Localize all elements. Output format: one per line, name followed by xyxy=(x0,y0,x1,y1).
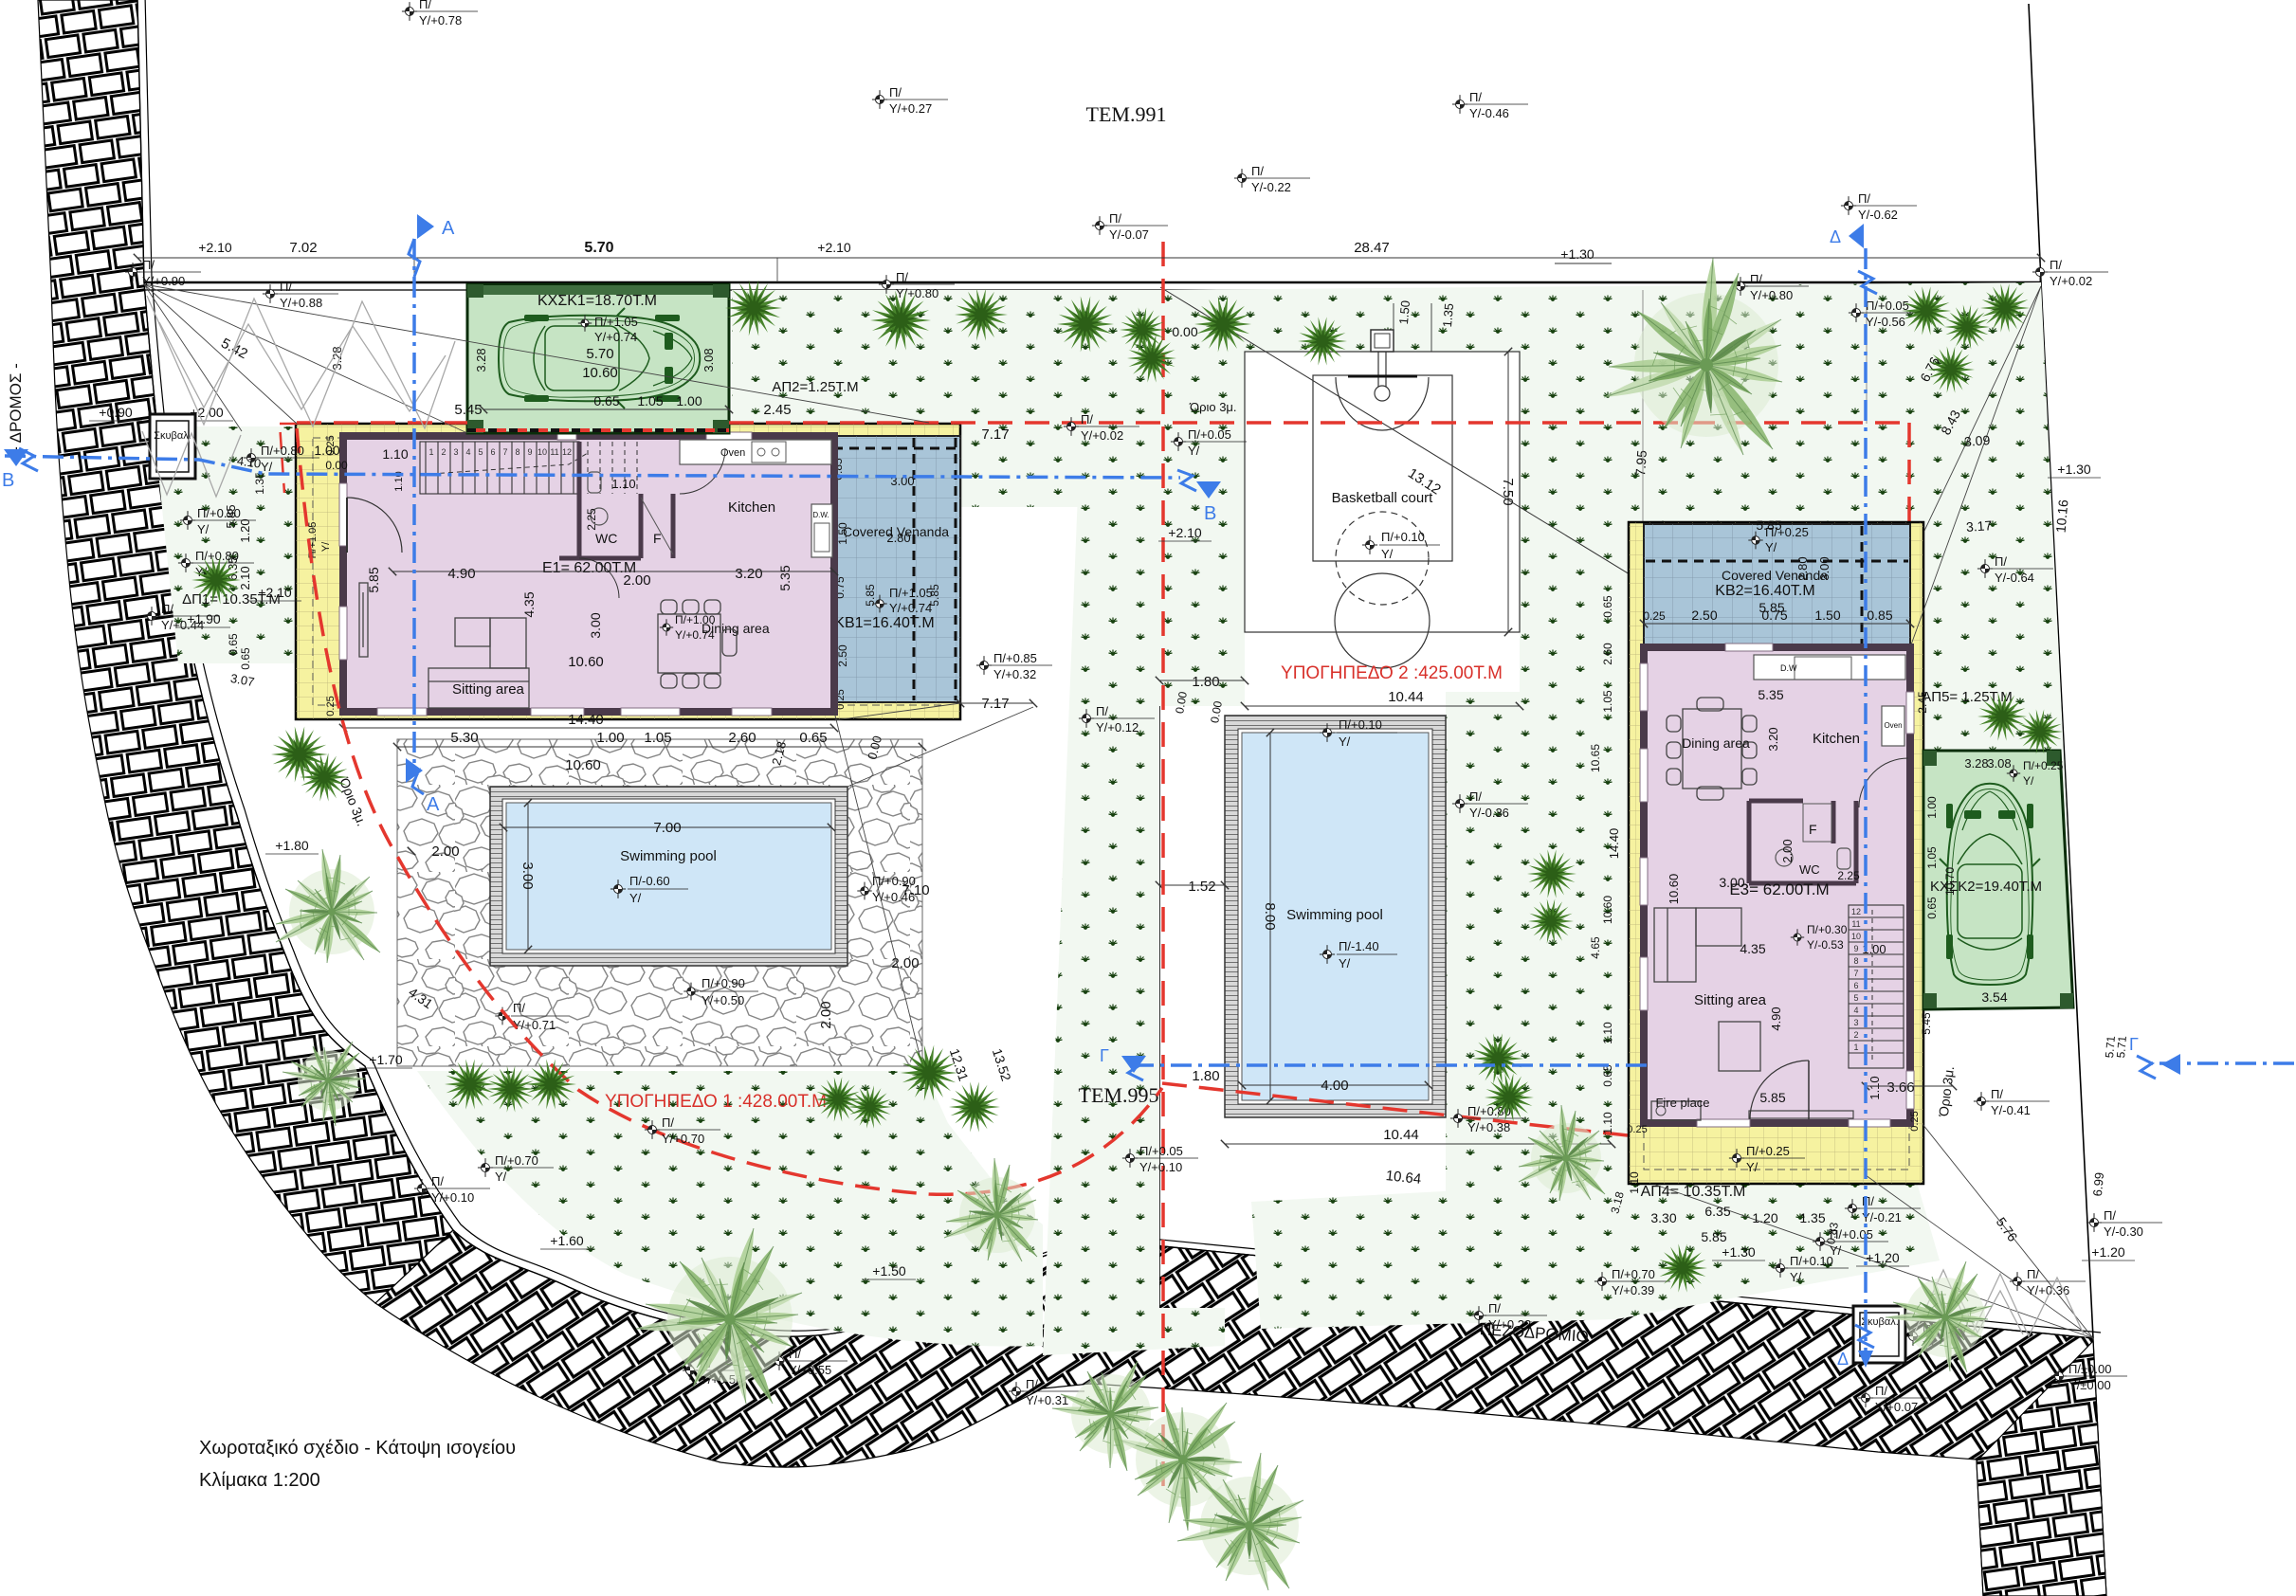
svg-text:0.65: 0.65 xyxy=(1601,1064,1614,1087)
svg-text:Y/+0.74: Y/+0.74 xyxy=(675,628,715,642)
svg-text:Y/: Y/ xyxy=(1746,1160,1758,1174)
svg-text:4: 4 xyxy=(1853,1006,1858,1015)
svg-text:Y/+0.02: Y/+0.02 xyxy=(1081,428,1123,443)
svg-text:2.60: 2.60 xyxy=(728,730,756,746)
svg-text:4.90: 4.90 xyxy=(1769,1007,1783,1030)
svg-text:10.16: 10.16 xyxy=(2053,499,2071,534)
svg-text:0.00: 0.00 xyxy=(325,459,348,472)
svg-text:A: A xyxy=(442,218,455,239)
svg-text:Π/: Π/ xyxy=(1096,704,1108,718)
svg-text:3.30: 3.30 xyxy=(1650,1210,1676,1225)
svg-text:1.10: 1.10 xyxy=(611,477,635,491)
svg-text:3.00: 3.00 xyxy=(1719,875,1744,890)
svg-text:+2.10: +2.10 xyxy=(817,240,851,255)
svg-text:Κλίμακα 1:200: Κλίμακα 1:200 xyxy=(199,1470,320,1491)
svg-text:Y/: Y/ xyxy=(629,891,642,905)
svg-text:Π/: Π/ xyxy=(2104,1208,2116,1223)
svg-text:ΚΧΣΚ1=18.70Τ.Μ: ΚΧΣΚ1=18.70Τ.Μ xyxy=(538,293,657,309)
svg-text:KB2=16.40T.M: KB2=16.40T.M xyxy=(1715,583,1814,599)
svg-text:Όριο 3μ.: Όριο 3μ. xyxy=(1189,400,1237,414)
svg-text:A: A xyxy=(427,794,440,815)
svg-text:10: 10 xyxy=(1851,932,1861,941)
svg-text:Π/: Π/ xyxy=(2050,258,2062,272)
svg-text:ΥΠΟΓΗΠΕΔΟ 1 :428.00Τ.Μ: ΥΠΟΓΗΠΕΔΟ 1 :428.00Τ.Μ xyxy=(605,1092,827,1112)
svg-text:Y/-0.64: Y/-0.64 xyxy=(1995,571,2034,585)
svg-text:Y/+0.50: Y/+0.50 xyxy=(702,993,744,1007)
svg-text:5: 5 xyxy=(1853,993,1858,1003)
svg-text:4.00: 4.00 xyxy=(1321,1078,1348,1094)
svg-text:+0.90: +0.90 xyxy=(99,405,133,420)
svg-text:2.60: 2.60 xyxy=(1601,643,1614,665)
svg-text:6.35: 6.35 xyxy=(1704,1204,1730,1219)
svg-text:Π/: Π/ xyxy=(896,270,908,284)
svg-text:3.00: 3.00 xyxy=(588,612,603,638)
svg-text:5.85: 5.85 xyxy=(1759,1090,1785,1105)
svg-text:10.44: 10.44 xyxy=(1383,1127,1419,1143)
svg-text:Π/+0.10: Π/+0.10 xyxy=(1790,1254,1833,1268)
svg-text:+1.50: +1.50 xyxy=(872,1263,906,1279)
svg-text:Π/: Π/ xyxy=(419,0,431,11)
svg-text:+1.70: +1.70 xyxy=(369,1052,403,1067)
svg-text:Y/+0.90: Y/+0.90 xyxy=(142,274,185,288)
svg-text:F: F xyxy=(653,531,662,546)
svg-text:Oven: Oven xyxy=(1884,721,1902,730)
svg-text:Swimming pool: Swimming pool xyxy=(1286,907,1383,923)
svg-text:2.45: 2.45 xyxy=(763,402,791,418)
svg-text:Y/: Y/ xyxy=(495,1170,507,1184)
svg-text:2.10: 2.10 xyxy=(238,566,252,589)
svg-text:ΥΠΟΓΗΠΕΔΟ 2 :425.00Τ.Μ: ΥΠΟΓΗΠΕΔΟ 2 :425.00Τ.Μ xyxy=(1281,663,1503,683)
svg-text:Y/: Y/ xyxy=(1339,735,1351,749)
svg-text:Π/+0.05: Π/+0.05 xyxy=(1866,299,1909,313)
svg-text:3.28: 3.28 xyxy=(1964,756,1988,771)
svg-text:1.50: 1.50 xyxy=(1814,608,1840,623)
svg-text:Π/+0.90: Π/+0.90 xyxy=(702,976,745,990)
svg-text:5.85: 5.85 xyxy=(1701,1229,1726,1244)
svg-text:1.00: 1.00 xyxy=(596,730,624,746)
svg-text:1: 1 xyxy=(428,447,433,457)
svg-text:1.20: 1.20 xyxy=(1752,1210,1777,1225)
svg-text:Y/-0.30: Y/-0.30 xyxy=(2104,1224,2143,1239)
svg-text:Y/-0.21: Y/-0.21 xyxy=(1862,1210,1902,1224)
svg-text:0.25: 0.25 xyxy=(1627,1124,1647,1135)
svg-text:+1.20: +1.20 xyxy=(1866,1250,1900,1265)
svg-text:1.05: 1.05 xyxy=(644,730,671,746)
svg-text:Π/: Π/ xyxy=(1862,1194,1874,1208)
svg-text:14.40: 14.40 xyxy=(1607,828,1621,860)
svg-text:4.90: 4.90 xyxy=(447,566,475,582)
svg-text:Y/-0.46: Y/-0.46 xyxy=(1469,106,1509,120)
svg-text:Basketball court: Basketball court xyxy=(1332,490,1434,506)
svg-text:Y/+0.88: Y/+0.88 xyxy=(280,296,322,310)
svg-text:Y/: Y/ xyxy=(1188,444,1200,458)
svg-text:14.40: 14.40 xyxy=(568,712,604,728)
svg-text:Π/: Π/ xyxy=(1251,164,1264,178)
svg-text:Π/: Π/ xyxy=(1469,789,1482,804)
svg-text:Y/+0.70: Y/+0.70 xyxy=(662,1132,704,1146)
svg-text:2: 2 xyxy=(441,447,446,457)
svg-text:5: 5 xyxy=(478,447,483,457)
svg-text:1.10: 1.10 xyxy=(1601,1022,1614,1044)
svg-text:Kitchen: Kitchen xyxy=(728,499,775,516)
svg-text:Π/: Π/ xyxy=(1991,1087,2003,1101)
svg-text:Sitting area: Sitting area xyxy=(1694,992,1767,1008)
svg-text:Π/: Π/ xyxy=(142,258,155,272)
svg-text:B: B xyxy=(1204,503,1216,524)
svg-text:Σκυβαλ.: Σκυβαλ. xyxy=(154,430,191,442)
svg-text:Y/±0.00: Y/±0.00 xyxy=(2068,1378,2111,1392)
svg-text:3.28: 3.28 xyxy=(474,348,488,372)
svg-text:+1.30: +1.30 xyxy=(1722,1244,1756,1260)
svg-text:Π/+0.70: Π/+0.70 xyxy=(495,1153,538,1168)
svg-text:D.W.: D.W. xyxy=(812,511,829,519)
svg-text:Y/+0.80: Y/+0.80 xyxy=(896,286,938,300)
svg-text:Y/: Y/ xyxy=(2023,774,2034,788)
svg-text:Y/-0.36: Y/-0.36 xyxy=(1469,806,1509,820)
svg-text:5.45: 5.45 xyxy=(454,402,482,418)
svg-text:KB1=16.40T.M: KB1=16.40T.M xyxy=(834,615,934,631)
svg-text:Dining area: Dining area xyxy=(1682,735,1750,751)
svg-text:2.00: 2.00 xyxy=(623,572,650,589)
svg-text:Π/: Π/ xyxy=(1026,1377,1038,1391)
svg-text:Π/: Π/ xyxy=(889,85,902,100)
svg-text:1.80: 1.80 xyxy=(1192,674,1219,690)
svg-text:Π/: Π/ xyxy=(280,280,292,294)
svg-text:7.17: 7.17 xyxy=(981,426,1009,443)
svg-text:WC: WC xyxy=(595,531,617,546)
svg-text:3.20: 3.20 xyxy=(1766,727,1780,751)
svg-text:7.10: 7.10 xyxy=(902,882,929,898)
svg-text:2.00: 2.00 xyxy=(818,1001,834,1028)
svg-text:5.71: 5.71 xyxy=(2114,1035,2129,1059)
svg-text:9: 9 xyxy=(527,447,532,457)
svg-text:Kitchen: Kitchen xyxy=(1813,731,1860,747)
svg-text:+2.10: +2.10 xyxy=(1168,525,1202,540)
svg-text:Π/-1.40: Π/-1.40 xyxy=(1339,939,1379,953)
svg-text:6: 6 xyxy=(490,447,495,457)
svg-text:5.85: 5.85 xyxy=(864,584,877,607)
svg-text:4.65: 4.65 xyxy=(1589,936,1602,959)
svg-text:Δ: Δ xyxy=(1837,1350,1849,1369)
svg-text:Π/: Π/ xyxy=(2027,1267,2039,1281)
svg-text:2.50: 2.50 xyxy=(1691,608,1717,623)
svg-text:3.08: 3.08 xyxy=(1987,756,2011,771)
svg-text:Y/-0.56: Y/-0.56 xyxy=(1866,315,1905,329)
svg-text:3.20: 3.20 xyxy=(735,566,762,582)
svg-text:5.85: 5.85 xyxy=(366,567,381,592)
svg-text:Y/: Y/ xyxy=(320,541,332,552)
svg-text:ΑΠ2=1.25Τ.Μ: ΑΠ2=1.25Τ.Μ xyxy=(772,379,858,395)
svg-text:Π/+0.25: Π/+0.25 xyxy=(1765,525,1809,539)
svg-text:3.09: 3.09 xyxy=(1964,432,1992,449)
svg-text:7: 7 xyxy=(502,447,507,457)
svg-text:+1.30: +1.30 xyxy=(1560,246,1594,262)
svg-text:0.25: 0.25 xyxy=(325,435,337,455)
svg-text:28.47: 28.47 xyxy=(1354,240,1390,256)
svg-text:3: 3 xyxy=(1853,1018,1858,1027)
svg-text:Π/+1.05: Π/+1.05 xyxy=(594,315,638,329)
svg-text:Fire place: Fire place xyxy=(1655,1096,1709,1110)
svg-text:1.10: 1.10 xyxy=(1601,1112,1614,1134)
svg-text:10: 10 xyxy=(538,447,547,457)
svg-text:Y/+0.80: Y/+0.80 xyxy=(1750,288,1793,302)
svg-text:Π/±0.00: Π/±0.00 xyxy=(2068,1362,2111,1376)
svg-text:1.05: 1.05 xyxy=(1601,690,1614,713)
svg-text:ΤΕΜ.991: ΤΕΜ.991 xyxy=(1086,102,1167,126)
svg-text:2: 2 xyxy=(1853,1030,1858,1040)
svg-text:Π/-0.60: Π/-0.60 xyxy=(629,874,670,888)
svg-text:Y/: Y/ xyxy=(261,460,273,474)
svg-text:D.W: D.W xyxy=(1780,663,1797,673)
svg-text:8: 8 xyxy=(1853,956,1858,966)
svg-text:5.35: 5.35 xyxy=(777,565,793,590)
svg-text:1.05: 1.05 xyxy=(637,393,663,408)
svg-text:3.66: 3.66 xyxy=(1886,1079,1914,1096)
svg-text:4.35: 4.35 xyxy=(521,591,537,617)
svg-text:7: 7 xyxy=(1853,969,1858,978)
svg-text:5.30: 5.30 xyxy=(450,730,478,746)
svg-text:10.60: 10.60 xyxy=(568,654,604,670)
svg-text:0.00: 0.00 xyxy=(1172,324,1197,339)
svg-text:Π/: Π/ xyxy=(1858,191,1870,206)
svg-text:+1.60: +1.60 xyxy=(550,1233,584,1248)
svg-text:Y/+0.71: Y/+0.71 xyxy=(513,1018,556,1032)
svg-text:Y/+0.38: Y/+0.38 xyxy=(1467,1120,1510,1134)
svg-text:2.50: 2.50 xyxy=(836,644,849,667)
svg-text:10.70: 10.70 xyxy=(1943,867,1957,896)
svg-text:Y/: Y/ xyxy=(197,522,210,536)
svg-text:+1.30: +1.30 xyxy=(2057,462,2091,477)
svg-text:Π/: Π/ xyxy=(431,1174,444,1188)
svg-text:Π/+0.05: Π/+0.05 xyxy=(1139,1144,1183,1158)
svg-text:11: 11 xyxy=(1851,919,1860,929)
svg-text:0.25: 0.25 xyxy=(325,696,337,716)
svg-text:1.00: 1.00 xyxy=(1925,796,1939,819)
svg-text:Y/+0.27: Y/+0.27 xyxy=(889,101,932,116)
svg-text:Y/+0.07: Y/+0.07 xyxy=(1875,1400,1918,1414)
svg-text:Y/-0.53: Y/-0.53 xyxy=(1807,938,1844,952)
svg-text:3.17: 3.17 xyxy=(1966,517,1994,535)
svg-text:Γ: Γ xyxy=(1100,1046,1109,1065)
svg-text:Y/+0.78: Y/+0.78 xyxy=(419,13,462,27)
svg-text:Y/+0.02: Y/+0.02 xyxy=(2050,274,2092,288)
svg-text:Π/+0.85: Π/+0.85 xyxy=(993,651,1037,665)
svg-text:+2.10: +2.10 xyxy=(258,585,292,600)
svg-text:Π/+0.25: Π/+0.25 xyxy=(1746,1144,1790,1158)
svg-text:WC: WC xyxy=(1799,862,1820,877)
svg-text:ΑΠ4= 10.35Τ.Μ: ΑΠ4= 10.35Τ.Μ xyxy=(1641,1184,1746,1200)
svg-text:3: 3 xyxy=(453,447,458,457)
svg-text:+1.80: +1.80 xyxy=(275,838,309,853)
svg-text:0.75: 0.75 xyxy=(1761,608,1787,623)
svg-text:3.08: 3.08 xyxy=(702,348,716,372)
svg-text:Y/+0.12: Y/+0.12 xyxy=(1096,720,1139,735)
svg-text:3.00: 3.00 xyxy=(519,861,536,889)
svg-text:2.00: 2.00 xyxy=(1780,839,1795,862)
svg-text:2.45: 2.45 xyxy=(1916,691,1929,714)
svg-text:Y/+0.55: Y/+0.55 xyxy=(789,1363,831,1377)
svg-text:Y/-0.22: Y/-0.22 xyxy=(1251,180,1291,194)
svg-text:7.95: 7.95 xyxy=(1632,449,1649,477)
svg-text:Y/+0.10: Y/+0.10 xyxy=(431,1190,474,1205)
svg-text:7.02: 7.02 xyxy=(289,240,317,256)
svg-text:Y/+0.31: Y/+0.31 xyxy=(1026,1393,1068,1407)
svg-text:1.35: 1.35 xyxy=(253,472,266,495)
svg-text:Y/-0.62: Y/-0.62 xyxy=(1858,208,1898,222)
svg-text:1.05: 1.05 xyxy=(1925,846,1939,869)
svg-text:Π/+0.05: Π/+0.05 xyxy=(1188,427,1231,442)
svg-text:Π/+0.25: Π/+0.25 xyxy=(2023,759,2064,772)
svg-text:Π/: Π/ xyxy=(513,1001,525,1015)
svg-text:1.50: 1.50 xyxy=(1396,299,1412,325)
svg-text:Y/+0.32: Y/+0.32 xyxy=(993,667,1036,681)
svg-text:2.25: 2.25 xyxy=(585,508,598,531)
svg-text:Y/+0.74: Y/+0.74 xyxy=(889,601,932,615)
svg-text:Y/: Y/ xyxy=(1765,540,1777,554)
svg-text:10.60: 10.60 xyxy=(1601,896,1614,924)
svg-text:2.00: 2.00 xyxy=(431,843,459,860)
svg-text:Y/: Y/ xyxy=(1381,547,1394,561)
svg-text:5.45: 5.45 xyxy=(1920,1012,1933,1035)
svg-text:Π/+0.30: Π/+0.30 xyxy=(1807,923,1848,936)
svg-text:4: 4 xyxy=(465,447,470,457)
svg-text:Π/+0.10: Π/+0.10 xyxy=(1339,717,1382,732)
svg-text:Π/+0.70: Π/+0.70 xyxy=(1612,1267,1655,1281)
svg-text:- ΔΡΟΜΟΣ -: - ΔΡΟΜΟΣ - xyxy=(7,363,25,452)
svg-text:1: 1 xyxy=(1853,1043,1858,1052)
svg-text:2.25: 2.25 xyxy=(1837,869,1860,882)
svg-text:0.65: 0.65 xyxy=(227,633,240,656)
svg-text:1.00: 1.00 xyxy=(676,393,702,408)
svg-text:6: 6 xyxy=(1853,981,1858,990)
svg-text:0.85: 0.85 xyxy=(1867,608,1892,623)
svg-text:9: 9 xyxy=(1853,944,1858,953)
svg-text:Π/+0.10: Π/+0.10 xyxy=(1381,530,1425,544)
svg-text:1.80: 1.80 xyxy=(1192,1068,1219,1084)
svg-text:8: 8 xyxy=(515,447,519,457)
svg-text:+1.20: +1.20 xyxy=(2091,1244,2125,1260)
svg-text:7.00: 7.00 xyxy=(653,820,681,836)
svg-text:10.60: 10.60 xyxy=(1667,874,1681,905)
svg-text:Π/: Π/ xyxy=(789,1347,801,1361)
svg-text:5.85: 5.85 xyxy=(224,504,238,528)
svg-text:0.25: 0.25 xyxy=(1643,609,1666,623)
svg-text:3.00: 3.00 xyxy=(1817,556,1831,580)
svg-text:1.50: 1.50 xyxy=(836,522,849,545)
svg-text:5.70: 5.70 xyxy=(584,240,613,256)
svg-text:E1= 62.00T.M: E1= 62.00T.M xyxy=(542,560,636,576)
svg-text:Π/: Π/ xyxy=(1875,1384,1887,1398)
svg-text:10.65: 10.65 xyxy=(1589,744,1602,772)
svg-text:1.10: 1.10 xyxy=(1868,1076,1882,1099)
svg-text:0.65: 0.65 xyxy=(239,647,252,670)
svg-text:Π/: Π/ xyxy=(1750,272,1762,286)
svg-text:1.35: 1.35 xyxy=(1799,1210,1825,1225)
svg-text:7.50: 7.50 xyxy=(1500,478,1516,505)
svg-text:Δ: Δ xyxy=(1830,227,1841,246)
svg-text:5.70: 5.70 xyxy=(586,346,613,362)
svg-text:12: 12 xyxy=(562,447,572,457)
svg-text:Π/: Π/ xyxy=(1109,211,1121,226)
svg-text:Π/+0.80: Π/+0.80 xyxy=(261,444,304,458)
svg-text:Y/+0.39: Y/+0.39 xyxy=(1612,1283,1654,1297)
svg-text:B: B xyxy=(2,470,14,491)
svg-text:1.10: 1.10 xyxy=(382,446,408,462)
svg-text:Π/: Π/ xyxy=(1488,1301,1501,1315)
svg-text:3.54: 3.54 xyxy=(1981,989,2007,1005)
svg-text:Χωροταξικό σχέδιο - Κάτοψη ισο: Χωροταξικό σχέδιο - Κάτοψη ισογείου xyxy=(199,1438,516,1459)
svg-text:ΤΕΜ.995: ΤΕΜ.995 xyxy=(1079,1083,1159,1107)
svg-text:5.35: 5.35 xyxy=(1758,687,1783,702)
svg-text:Y/+0.10: Y/+0.10 xyxy=(1139,1160,1182,1174)
svg-text:Γ: Γ xyxy=(2129,1035,2139,1054)
svg-text:Y/+0.74: Y/+0.74 xyxy=(594,330,637,344)
svg-text:1.10: 1.10 xyxy=(1628,1171,1641,1194)
svg-text:0.65: 0.65 xyxy=(593,393,619,408)
svg-text:Y/: Y/ xyxy=(1790,1270,1802,1284)
svg-text:10.44: 10.44 xyxy=(1388,689,1424,705)
svg-text:6.99: 6.99 xyxy=(2090,1171,2106,1197)
svg-text:1.35: 1.35 xyxy=(1440,302,1456,328)
svg-text:2.80: 2.80 xyxy=(886,531,910,545)
svg-text:Sitting area: Sitting area xyxy=(452,681,525,698)
svg-text:Swimming pool: Swimming pool xyxy=(620,848,717,864)
svg-text:0.65: 0.65 xyxy=(1601,595,1614,618)
svg-text:Y/: Y/ xyxy=(1339,956,1351,970)
svg-text:10.60: 10.60 xyxy=(565,757,601,773)
svg-text:+1.90: +1.90 xyxy=(187,611,221,626)
svg-text:Π/+1.05: Π/+1.05 xyxy=(889,586,933,600)
svg-text:0.65: 0.65 xyxy=(799,730,827,746)
svg-text:11: 11 xyxy=(550,447,558,457)
svg-text:Π/: Π/ xyxy=(1995,554,2007,569)
svg-text:8.00: 8.00 xyxy=(1262,902,1278,930)
svg-text:2.80: 2.80 xyxy=(1795,556,1810,580)
svg-text:Y/-0.07: Y/-0.07 xyxy=(1109,227,1149,242)
svg-text:Y/-0.41: Y/-0.41 xyxy=(1991,1103,2031,1117)
svg-text:0.65: 0.65 xyxy=(1925,897,1939,919)
svg-text:F: F xyxy=(1809,822,1817,837)
svg-text:0.25: 0.25 xyxy=(1909,1111,1921,1131)
svg-text:4.35: 4.35 xyxy=(1740,941,1765,956)
svg-text:12: 12 xyxy=(1851,907,1861,916)
svg-text:+2.10: +2.10 xyxy=(198,240,232,255)
svg-text:Covered Venanda: Covered Venanda xyxy=(1722,568,1828,583)
svg-text:Π/: Π/ xyxy=(1469,90,1482,104)
svg-text:1.20: 1.20 xyxy=(238,518,252,542)
svg-text:Π/: Π/ xyxy=(161,602,173,616)
svg-text:Π/+1.00: Π/+1.00 xyxy=(675,613,716,626)
svg-text:1.52: 1.52 xyxy=(1188,879,1215,895)
svg-text:Π/: Π/ xyxy=(1081,412,1093,426)
svg-text:Π/: Π/ xyxy=(662,1115,674,1130)
